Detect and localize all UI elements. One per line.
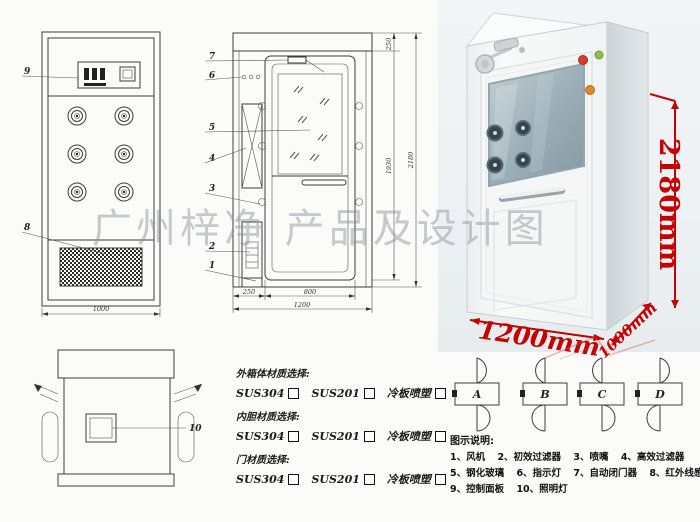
checkbox-door-sus304[interactable] (288, 474, 299, 485)
legend: 图示说明: 1、风机 2、初效过滤器 3、喷嘴 4、高效过滤器 5、钢化玻璃 6… (450, 433, 698, 498)
door-option-a: A (450, 350, 504, 436)
legend-item: 3、喷嘴 (573, 452, 608, 463)
fan-drawing (242, 104, 262, 188)
svg-text:2: 2 (208, 242, 215, 252)
dim-1000: 1000 (93, 305, 110, 313)
product-photo: 2180mm 1200mm 1000mm (438, 0, 700, 352)
checkbox-outer-sus201[interactable] (364, 388, 375, 399)
svg-text:C: C (598, 388, 607, 401)
svg-text:1: 1 (209, 261, 215, 271)
svg-text:B: B (539, 388, 549, 401)
door-material-title: 门材质选择: (236, 451, 442, 466)
nozzles-drawing (68, 107, 133, 201)
svg-text:800: 800 (304, 288, 316, 296)
checkbox-door-sus201[interactable] (364, 474, 375, 485)
side-view-drawing: 7 6 5 4 3 2 1 250 (198, 26, 446, 344)
hinges-drawing (259, 103, 363, 206)
legend-item: 1、风机 (450, 452, 485, 463)
svg-text:7: 7 (209, 52, 216, 62)
svg-text:5: 5 (209, 123, 215, 133)
legend-title: 图示说明: (450, 433, 698, 450)
height-dimensions: 250 1930 2180 (372, 33, 422, 287)
front-view-drawing: 9 8 1000 (16, 24, 168, 320)
top-view-drawing: 10 (34, 338, 206, 496)
outer-material-title: 外箱体材质选择: (236, 365, 442, 380)
svg-text:4: 4 (209, 154, 215, 164)
material-selection: 外箱体材质选择: SUS304 SUS201 冷板喷塑 内胆材质选择: SUS3… (236, 358, 442, 489)
legend-item: 7、自动闭门器 (573, 468, 637, 479)
callout-9: 9 (24, 67, 31, 77)
checkbox-outer-coated[interactable] (435, 388, 446, 399)
glass-hatching (290, 86, 329, 161)
legend-item: 2、初效过滤器 (497, 452, 561, 463)
design-sheet: 9 8 1000 (0, 0, 700, 522)
depth-dimensions: 250 800 1200 (233, 280, 372, 313)
callout-10: 10 (189, 424, 202, 434)
svg-text:2180mm: 2180mm (653, 138, 684, 270)
checkbox-inner-coated[interactable] (435, 431, 446, 442)
inner-material-title: 内胆材质选择: (236, 408, 442, 423)
svg-text:1930: 1930 (385, 158, 393, 175)
control-panel-drawing (78, 62, 140, 88)
svg-text:250: 250 (385, 38, 393, 51)
option-label: 冷板喷塑 (387, 385, 431, 401)
option-label: 冷板喷塑 (387, 471, 431, 487)
door-swing-arcs (34, 384, 202, 462)
option-label: SUS304 (236, 430, 284, 443)
checkbox-door-coated[interactable] (435, 474, 446, 485)
grille-drawing (60, 248, 142, 286)
callout-8: 8 (24, 223, 31, 233)
svg-text:A: A (472, 388, 482, 401)
svg-text:3: 3 (209, 184, 215, 194)
checkbox-outer-sus304[interactable] (288, 388, 299, 399)
legend-item: 8、红外线感应器 (649, 468, 700, 479)
svg-text:1200: 1200 (294, 301, 311, 309)
svg-text:D: D (654, 388, 665, 401)
door-option-b: B (518, 350, 572, 436)
legend-item: 6、指示灯 (516, 468, 561, 479)
side-callouts: 7 6 5 4 3 2 1 (205, 52, 310, 281)
option-label: SUS304 (236, 387, 284, 400)
legend-item: 9、控制面板 (450, 484, 504, 495)
option-label: 冷板喷塑 (387, 428, 431, 444)
dim-height: 2180mm (650, 94, 684, 308)
checkbox-inner-sus304[interactable] (288, 431, 299, 442)
legend-item: 10、照明灯 (516, 484, 567, 495)
svg-text:2180: 2180 (407, 152, 415, 170)
option-label: SUS201 (311, 473, 359, 486)
option-label: SUS201 (311, 387, 359, 400)
option-label: SUS201 (311, 430, 359, 443)
door-option-d: D (633, 350, 687, 436)
checkbox-inner-sus201[interactable] (364, 431, 375, 442)
option-label: SUS304 (236, 473, 284, 486)
svg-text:250: 250 (242, 288, 255, 296)
filter-box-drawing (242, 222, 262, 287)
legend-item: 4、高效过滤器 (621, 452, 685, 463)
door-option-c: C (575, 350, 629, 436)
legend-item: 5、钢化玻璃 (450, 468, 504, 479)
